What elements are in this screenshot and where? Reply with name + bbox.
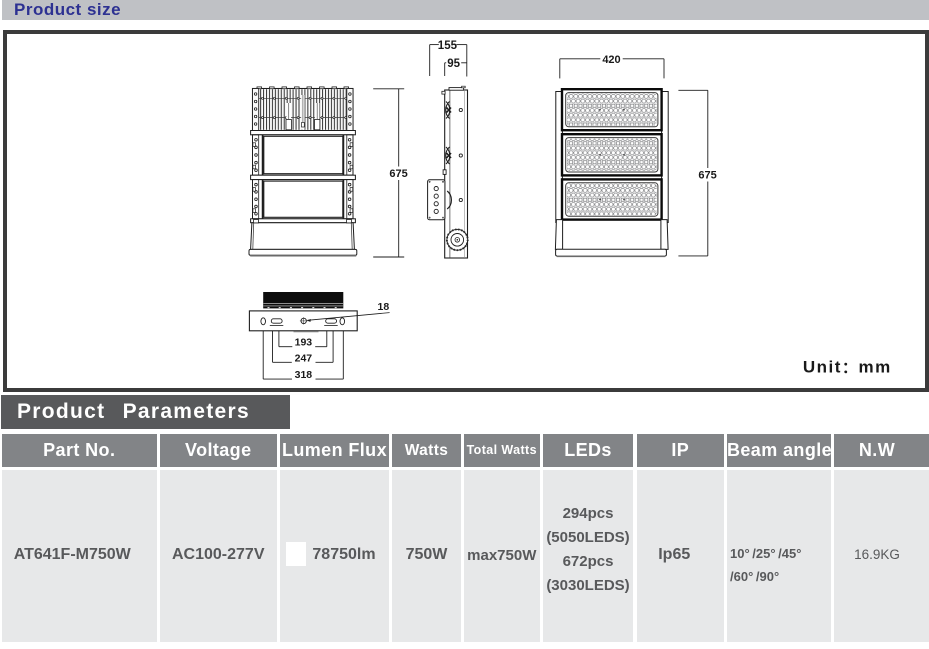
svg-text:675: 675 (698, 170, 716, 182)
svg-text:155: 155 (438, 40, 458, 52)
svg-text:18: 18 (378, 301, 390, 313)
svg-text:193: 193 (295, 336, 313, 348)
svg-text:675: 675 (389, 168, 407, 180)
svg-text:Unit：mm: Unit：mm (803, 358, 892, 377)
svg-text:318: 318 (295, 369, 313, 381)
svg-text:95: 95 (447, 58, 460, 70)
svg-text:247: 247 (295, 353, 313, 365)
svg-text:420: 420 (602, 54, 620, 66)
